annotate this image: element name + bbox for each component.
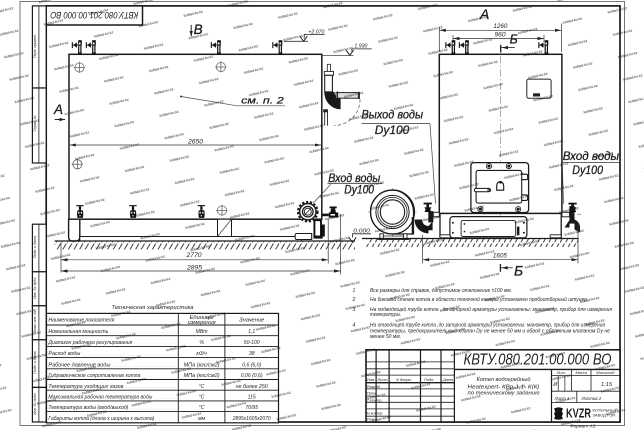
- svg-text:Максимальная рабочая температу: Максимальная рабочая температура воды: [48, 395, 152, 401]
- svg-text:На подводящей трубе котла , д: На подводящей трубе котла , до запорной …: [370, 306, 612, 313]
- svg-text:МПа (кгс/см2): МПа (кгс/см2): [184, 362, 220, 368]
- svg-text:МВт: МВт: [196, 329, 208, 335]
- svg-text:Масштаб: Масштаб: [596, 370, 615, 375]
- svg-text:Н.контр.: Н.контр.: [367, 411, 383, 416]
- svg-text:2895: 2895: [186, 264, 203, 271]
- svg-text:Расход воды: Расход воды: [48, 351, 80, 357]
- svg-text:115: 115: [248, 395, 256, 401]
- svg-text:Все размеры для справок, допус: Все размеры для справок, допустимое откл…: [370, 288, 512, 294]
- svg-text:1:15: 1:15: [601, 382, 613, 388]
- svg-text:1: 1: [353, 288, 356, 294]
- svg-text:КВТУ.080.201.00.000 ВО: КВТУ.080.201.00.000 ВО: [50, 9, 139, 20]
- svg-text:Рабочее давление воды: Рабочее давление воды: [48, 362, 110, 368]
- svg-text:KVZR: KVZR: [566, 407, 591, 421]
- svg-text:Лист: Лист: [377, 377, 389, 382]
- svg-text:50-100: 50-100: [244, 340, 260, 346]
- svg-text:2: 2: [352, 297, 356, 303]
- svg-text:1605: 1605: [493, 252, 507, 259]
- svg-text:МПа (кгс/см2): МПа (кгс/см2): [184, 373, 220, 379]
- svg-text:+2.070: +2.070: [308, 29, 325, 35]
- svg-text:Техническая характеристика: Техническая характеристика: [112, 305, 194, 311]
- svg-text:температуры.: температуры.: [370, 312, 401, 318]
- svg-text:°С: °С: [199, 405, 205, 411]
- svg-text:измерения: измерения: [188, 320, 216, 326]
- svg-text:Масса: Масса: [575, 370, 587, 375]
- svg-text:3: 3: [353, 307, 356, 313]
- svg-text:N докум.: N докум.: [396, 377, 412, 382]
- svg-text:Разраб.: Разраб.: [367, 384, 381, 389]
- svg-text:Листов 2: Листов 2: [581, 396, 602, 401]
- svg-text:см. п. 2: см. п. 2: [241, 95, 284, 106]
- svg-text:2650: 2650: [187, 139, 204, 146]
- svg-text:не более 250: не более 250: [236, 384, 268, 390]
- svg-text:А: А: [53, 102, 63, 117]
- svg-text:Диапазон рабочего регулировани: Диапазон рабочего регулирования: [47, 340, 132, 346]
- svg-text:А: А: [479, 6, 489, 22]
- svg-text:Т.контр.: Т.контр.: [367, 397, 383, 402]
- svg-text:Перв. примен.: Перв. примен.: [33, 34, 37, 58]
- svg-text:Лит.: Лит.: [556, 370, 566, 375]
- svg-text:Dy100: Dy100: [375, 123, 410, 137]
- svg-text:70/95: 70/95: [245, 405, 258, 411]
- svg-text:Вход воды: Вход воды: [563, 149, 619, 163]
- svg-text:Номинальная мощность: Номинальная мощность: [48, 329, 108, 335]
- svg-text:Габариты котла (длина х ширина: Габариты котла (длина х ширина х высота): [48, 416, 154, 422]
- svg-text:°С: °С: [199, 395, 205, 401]
- svg-text:1.930: 1.930: [354, 44, 368, 50]
- svg-text:Дата: Дата: [442, 377, 454, 382]
- svg-text:1,1: 1,1: [248, 329, 255, 335]
- svg-text:0,6 (6,0): 0,6 (6,0): [242, 362, 261, 368]
- svg-text:2770: 2770: [185, 252, 202, 259]
- svg-text:м3/ч: м3/ч: [196, 351, 207, 357]
- svg-text:Инв. № подл.: Инв. № подл.: [33, 393, 37, 415]
- svg-text:В: В: [194, 22, 203, 37]
- svg-text:Температура воды (вход/выход): Температура воды (вход/выход): [48, 405, 128, 411]
- svg-text:Инв. № дубл.: Инв. № дубл.: [33, 277, 37, 299]
- svg-text:Взам. инв. №: Взам. инв. №: [33, 311, 37, 333]
- svg-text:Подп. и дата: Подп. и дата: [33, 236, 37, 259]
- svg-text:Б: Б: [514, 262, 523, 278]
- svg-text:Котел водогрейный: Котел водогрейный: [477, 376, 531, 383]
- svg-text:Лист 1: Лист 1: [554, 396, 571, 401]
- svg-text:менее 50 мм.: менее 50 мм.: [370, 334, 401, 340]
- svg-text:1260: 1260: [493, 23, 507, 30]
- svg-text:температуры, предохранительный: температуры, предохранительный клапан Dу…: [370, 328, 610, 335]
- svg-text:%: %: [199, 340, 204, 346]
- svg-text:Значение: Значение: [239, 318, 264, 324]
- svg-text:Справ. №: Справ. №: [33, 115, 37, 131]
- svg-text:мм: мм: [198, 416, 205, 422]
- svg-text:Пров.: Пров.: [367, 391, 377, 396]
- svg-text:Подп. и дата: Подп. и дата: [33, 351, 37, 374]
- svg-text:0,06 (0,6): 0,06 (0,6): [241, 373, 263, 379]
- svg-text:Dy100: Dy100: [572, 163, 603, 177]
- svg-text:2895х1605х2070: 2895х1605х2070: [232, 416, 271, 422]
- svg-text:Формат А3: Формат А3: [570, 423, 596, 428]
- svg-text:4: 4: [353, 323, 356, 329]
- svg-text:ЗАВОД РЭП: ЗАВОД РЭП: [593, 413, 616, 418]
- svg-text:КВТУ.080.201.00.000 ВО: КВТУ.080.201.00.000 ВО: [464, 352, 612, 369]
- svg-text:Гидравлическое сопротивление к: Гидравлическое сопротивление котла: [48, 373, 140, 379]
- svg-text:Выход воды: Выход воды: [362, 108, 424, 122]
- svg-text:960: 960: [495, 32, 506, 39]
- svg-text:Б: Б: [510, 32, 518, 46]
- svg-text:по техническому заданию: по техническому заданию: [468, 391, 540, 397]
- svg-text:Утв.: Утв.: [367, 417, 376, 422]
- svg-text:Изм.: Изм.: [367, 377, 375, 382]
- svg-text:Температура уходящих газов: Температура уходящих газов: [48, 384, 123, 390]
- svg-text:Подп.: Подп.: [424, 377, 434, 382]
- svg-text:38: 38: [249, 351, 255, 357]
- svg-text:На боковой стенке котла в обла: На боковой стенке котла в области топочн…: [370, 296, 587, 303]
- svg-text:Dy100: Dy100: [344, 182, 374, 196]
- svg-text:°С: °С: [199, 384, 205, 390]
- svg-text:Наименование показателя: Наименование показателя: [48, 318, 114, 324]
